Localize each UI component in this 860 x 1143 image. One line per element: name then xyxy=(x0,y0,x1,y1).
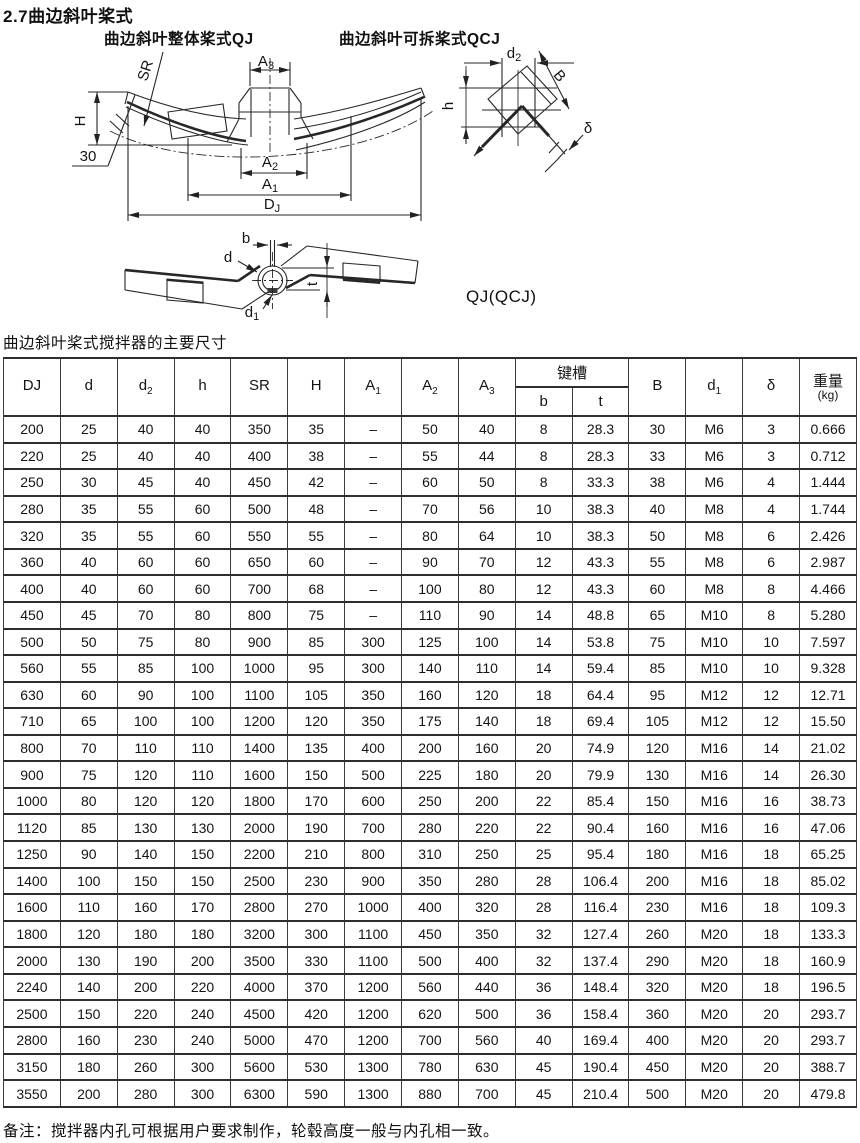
table-cell: 110 xyxy=(174,735,231,762)
table-cell: M8 xyxy=(686,496,743,523)
dim-B: B xyxy=(550,67,569,86)
col-header-dj: DJ xyxy=(4,358,61,416)
table-cell: 12.71 xyxy=(800,682,857,709)
table-cell: 18 xyxy=(743,974,800,1001)
table-cell: 60 xyxy=(174,522,231,549)
col-header-d: d xyxy=(60,358,117,416)
table-cell: 470 xyxy=(288,1027,345,1054)
table-cell: 12 xyxy=(743,708,800,735)
table-cell: 21.02 xyxy=(800,735,857,762)
table-cell: 32 xyxy=(515,921,572,948)
table-cell: 150 xyxy=(174,841,231,868)
table-cell: 150 xyxy=(288,761,345,788)
table-cell: 270 xyxy=(288,894,345,921)
table-cell: 190.4 xyxy=(572,1054,629,1081)
table-cell: 5.280 xyxy=(800,602,857,629)
table-cell: 14 xyxy=(515,602,572,629)
table-cell: 20 xyxy=(743,1000,800,1027)
table-cell: 620 xyxy=(402,1000,459,1027)
table-cell: 250 xyxy=(4,469,61,496)
table-cell: 15.50 xyxy=(800,708,857,735)
table-cell: 65 xyxy=(629,602,686,629)
table-cell: 900 xyxy=(4,761,61,788)
table-cell: 700 xyxy=(458,1080,515,1107)
table-row: 18001201801803200300110045035032127.4260… xyxy=(4,921,857,948)
table-cell: 105 xyxy=(629,708,686,735)
table-cell: 210.4 xyxy=(572,1080,629,1107)
table-cell: 320 xyxy=(458,894,515,921)
table-cell: 180 xyxy=(458,761,515,788)
table-cell: 38 xyxy=(629,469,686,496)
table-cell: 160 xyxy=(117,894,174,921)
col-header-h: h xyxy=(174,358,231,416)
dim-H: H xyxy=(72,116,89,127)
table-cell: 36 xyxy=(515,974,572,1001)
table-caption: 曲边斜叶桨式搅拌器的主要尺寸 xyxy=(3,331,227,353)
table-cell: 45 xyxy=(60,602,117,629)
table-cell: M16 xyxy=(686,761,743,788)
table-cell: 22 xyxy=(515,814,572,841)
table-cell: 9.328 xyxy=(800,655,857,682)
table-cell: 20 xyxy=(515,761,572,788)
table-cell: 90 xyxy=(458,602,515,629)
col-header-keyway-t: t xyxy=(572,387,629,416)
table-cell: 55 xyxy=(288,522,345,549)
dimension-table: DJ d d2 h SR H A1 A2 A3 键槽 B d1 δ 重量(kg)… xyxy=(3,357,857,1108)
table-cell: 360 xyxy=(4,549,61,576)
table-cell: 240 xyxy=(174,1000,231,1027)
table-cell: 260 xyxy=(117,1054,174,1081)
table-cell: 80 xyxy=(174,629,231,656)
table-cell: M6 xyxy=(686,469,743,496)
table-cell: 45 xyxy=(515,1054,572,1081)
table-cell: 120 xyxy=(60,921,117,948)
table-cell: 3500 xyxy=(231,947,288,974)
table-cell: 30 xyxy=(629,416,686,443)
col-header-weight: 重量(kg) xyxy=(800,358,857,416)
table-cell: 560 xyxy=(402,974,459,1001)
table-row: 8007011011014001354002001602074.9120M161… xyxy=(4,735,857,762)
table-cell: 18 xyxy=(743,841,800,868)
table-cell: 800 xyxy=(345,841,402,868)
table-cell: 370 xyxy=(288,974,345,1001)
dim-d1: d1 xyxy=(245,304,259,323)
table-cell: 8 xyxy=(743,602,800,629)
table-cell: 700 xyxy=(402,1027,459,1054)
table-cell: 79.9 xyxy=(572,761,629,788)
table-cell: 38.3 xyxy=(572,496,629,523)
table-cell: 3550 xyxy=(4,1080,61,1107)
table-cell: 75 xyxy=(60,761,117,788)
table-cell: 3 xyxy=(743,443,800,470)
table-cell: 200 xyxy=(402,735,459,762)
table-cell: 10 xyxy=(743,655,800,682)
table-cell: 70 xyxy=(402,496,459,523)
table-cell: 200 xyxy=(60,1080,117,1107)
table-cell: M16 xyxy=(686,841,743,868)
table-cell: 630 xyxy=(458,1054,515,1081)
table-cell: 60 xyxy=(288,549,345,576)
table-cell: M16 xyxy=(686,868,743,895)
table-cell: 33.3 xyxy=(572,469,629,496)
table-cell: 68 xyxy=(288,575,345,602)
table-cell: 43.3 xyxy=(572,575,629,602)
table-cell: 45 xyxy=(515,1080,572,1107)
table-cell: 69.4 xyxy=(572,708,629,735)
table-cell: M12 xyxy=(686,682,743,709)
table-cell: 700 xyxy=(345,814,402,841)
table-cell: 14 xyxy=(515,629,572,656)
table-cell: 18 xyxy=(515,682,572,709)
dim-delta: δ xyxy=(584,120,592,137)
table-cell: 400 xyxy=(402,894,459,921)
table-cell: 130 xyxy=(174,814,231,841)
table-cell: 1100 xyxy=(231,682,288,709)
table-cell: 90 xyxy=(60,841,117,868)
col-header-a1: A1 xyxy=(345,358,402,416)
table-cell: 220 xyxy=(117,1000,174,1027)
table-cell: M20 xyxy=(686,974,743,1001)
table-cell: 85 xyxy=(629,655,686,682)
table-cell: 1400 xyxy=(4,868,61,895)
table-cell: 85 xyxy=(288,629,345,656)
table-cell: 100 xyxy=(174,708,231,735)
table-cell: 6300 xyxy=(231,1080,288,1107)
table-cell: 56 xyxy=(458,496,515,523)
table-cell: 300 xyxy=(174,1054,231,1081)
table-cell: 150 xyxy=(629,788,686,815)
table-cell: 420 xyxy=(288,1000,345,1027)
table-cell: 500 xyxy=(629,1080,686,1107)
table-cell: 80 xyxy=(174,602,231,629)
table-cell: 200 xyxy=(629,868,686,895)
technical-drawing: H SR 30 A3 A2 A1 DJ xyxy=(0,0,860,348)
table-cell: 440 xyxy=(458,974,515,1001)
table-cell: 42 xyxy=(288,469,345,496)
table-row: 16001101601702800270100040032028116.4230… xyxy=(4,894,857,921)
col-header-B: B xyxy=(629,358,686,416)
side-view-drawing xyxy=(72,52,433,221)
table-cell: 110 xyxy=(402,602,459,629)
table-cell: M20 xyxy=(686,1000,743,1027)
table-cell: 530 xyxy=(288,1054,345,1081)
table-cell: 190 xyxy=(117,947,174,974)
table-cell: 196.5 xyxy=(800,974,857,1001)
table-cell: 4500 xyxy=(231,1000,288,1027)
table-cell: 330 xyxy=(288,947,345,974)
table-cell: 360 xyxy=(629,1000,686,1027)
table-cell: 55 xyxy=(402,443,459,470)
table-cell: 4 xyxy=(743,496,800,523)
table-cell: 2.987 xyxy=(800,549,857,576)
table-cell: M20 xyxy=(686,1080,743,1107)
table-cell: 800 xyxy=(231,602,288,629)
table-cell: 590 xyxy=(288,1080,345,1107)
table-cell: 85 xyxy=(117,655,174,682)
table-cell: 60 xyxy=(174,549,231,576)
table-cell: 180 xyxy=(629,841,686,868)
table-cell: 300 xyxy=(288,921,345,948)
table-cell: 60 xyxy=(402,469,459,496)
table-cell: 1400 xyxy=(231,735,288,762)
table-cell: 450 xyxy=(231,469,288,496)
table-row: 45045708080075–110901448.865M1085.280 xyxy=(4,602,857,629)
table-cell: 210 xyxy=(288,841,345,868)
table-row: 12509014015022002108003102502595.4180M16… xyxy=(4,841,857,868)
table-cell: 1.444 xyxy=(800,469,857,496)
table-cell: – xyxy=(345,549,402,576)
table-cell: 4000 xyxy=(231,974,288,1001)
table-cell: 12 xyxy=(515,575,572,602)
table-row: 20001301902003500330110050040032137.4290… xyxy=(4,947,857,974)
table-cell: 175 xyxy=(402,708,459,735)
table-cell: 12 xyxy=(515,549,572,576)
table-cell: 95 xyxy=(288,655,345,682)
table-cell: 100 xyxy=(458,629,515,656)
table-cell: 125 xyxy=(402,629,459,656)
table-cell: 1200 xyxy=(345,974,402,1001)
table-cell: 2500 xyxy=(231,868,288,895)
table-cell: 4.466 xyxy=(800,575,857,602)
table-cell: 5000 xyxy=(231,1027,288,1054)
col-header-H: H xyxy=(288,358,345,416)
table-cell: 500 xyxy=(458,1000,515,1027)
table-row: 31501802603005600530130078063045190.4450… xyxy=(4,1054,857,1081)
table-cell: 2.426 xyxy=(800,522,857,549)
col-header-delta: δ xyxy=(743,358,800,416)
table-cell: 293.7 xyxy=(800,1027,857,1054)
table-cell: 180 xyxy=(60,1054,117,1081)
table-cell: 18 xyxy=(743,868,800,895)
table-cell: 60 xyxy=(117,549,174,576)
table-cell: 45 xyxy=(117,469,174,496)
table-row: 35502002803006300590130088070045210.4500… xyxy=(4,1080,857,1107)
table-cell: 300 xyxy=(345,629,402,656)
table-cell: 300 xyxy=(174,1080,231,1107)
table-cell: M16 xyxy=(686,735,743,762)
col-header-keyway-b: b xyxy=(515,387,572,416)
table-cell: 148.4 xyxy=(572,974,629,1001)
table-cell: 280 xyxy=(458,868,515,895)
table-cell: 350 xyxy=(402,868,459,895)
table-cell: 55 xyxy=(60,655,117,682)
table-cell: 300 xyxy=(345,655,402,682)
table-body: 20025404035035–5040828.330M630.666220254… xyxy=(4,416,857,1107)
table-cell: 220 xyxy=(4,443,61,470)
table-cell: 2000 xyxy=(231,814,288,841)
table-cell: 260 xyxy=(629,921,686,948)
table-cell: 100 xyxy=(402,575,459,602)
table-cell: 14 xyxy=(515,655,572,682)
dim-A1: A1 xyxy=(262,176,278,195)
table-cell: 85 xyxy=(60,814,117,841)
table-cell: 350 xyxy=(345,682,402,709)
table-cell: – xyxy=(345,575,402,602)
table-cell: 90 xyxy=(402,549,459,576)
table-cell: 70 xyxy=(117,602,174,629)
table-cell: 160 xyxy=(458,735,515,762)
table-cell: 130 xyxy=(117,814,174,841)
table-cell: 310 xyxy=(402,841,459,868)
table-row: 32035556055055–80641038.350M862.426 xyxy=(4,522,857,549)
table-cell: 16 xyxy=(743,814,800,841)
table-cell: 8 xyxy=(515,469,572,496)
table-cell: 200 xyxy=(174,947,231,974)
table-cell: M16 xyxy=(686,894,743,921)
table-cell: 2800 xyxy=(231,894,288,921)
table-cell: 18 xyxy=(743,947,800,974)
col-header-a2: A2 xyxy=(402,358,459,416)
table-cell: 710 xyxy=(4,708,61,735)
table-cell: 320 xyxy=(4,522,61,549)
table-cell: 4 xyxy=(743,469,800,496)
table-cell: 350 xyxy=(458,921,515,948)
table-cell: 1200 xyxy=(345,1027,402,1054)
table-cell: 75 xyxy=(117,629,174,656)
table-cell: 160 xyxy=(60,1027,117,1054)
table-cell: 48 xyxy=(288,496,345,523)
table-cell: M16 xyxy=(686,814,743,841)
table-cell: 800 xyxy=(4,735,61,762)
table-cell: 38 xyxy=(288,443,345,470)
table-cell: 700 xyxy=(231,575,288,602)
table-cell: 28 xyxy=(515,894,572,921)
dim-h: h xyxy=(440,102,457,110)
table-cell: 230 xyxy=(629,894,686,921)
table-cell: 50 xyxy=(402,416,459,443)
table-cell: 100 xyxy=(117,708,174,735)
table-cell: M10 xyxy=(686,629,743,656)
dim-30: 30 xyxy=(80,148,97,165)
table-cell: 650 xyxy=(231,549,288,576)
table-cell: 127.4 xyxy=(572,921,629,948)
table-cell: 44 xyxy=(458,443,515,470)
table-cell: 140 xyxy=(60,974,117,1001)
table-cell: 140 xyxy=(458,708,515,735)
table-cell: 22 xyxy=(515,788,572,815)
table-row: 36040606065060–90701243.355M862.987 xyxy=(4,549,857,576)
col-header-sr: SR xyxy=(231,358,288,416)
table-cell: 200 xyxy=(4,416,61,443)
table-cell: 110 xyxy=(117,735,174,762)
table-cell: 70 xyxy=(458,549,515,576)
table-cell: 40 xyxy=(629,496,686,523)
table-cell: 137.4 xyxy=(572,947,629,974)
table-cell: 60 xyxy=(174,496,231,523)
table-cell: 55 xyxy=(117,522,174,549)
table-cell: 320 xyxy=(629,974,686,1001)
table-cell: 230 xyxy=(288,868,345,895)
table-cell: 135 xyxy=(288,735,345,762)
table-cell: 10 xyxy=(743,629,800,656)
col-header-a3: A3 xyxy=(458,358,515,416)
table-cell: 60 xyxy=(174,575,231,602)
table-cell: 110 xyxy=(60,894,117,921)
table-cell: 560 xyxy=(4,655,61,682)
table-cell: 180 xyxy=(174,921,231,948)
table-cell: 120 xyxy=(174,788,231,815)
table-cell: 116.4 xyxy=(572,894,629,921)
model-designation: QJ(QCJ) xyxy=(466,287,537,307)
table-cell: 560 xyxy=(458,1027,515,1054)
table-cell: 90 xyxy=(117,682,174,709)
dim-d2: d2 xyxy=(507,45,521,64)
table-cell: 1600 xyxy=(231,761,288,788)
table-cell: 65 xyxy=(60,708,117,735)
table-cell: 180 xyxy=(117,921,174,948)
dim-A3: A3 xyxy=(258,53,274,72)
table-cell: 1000 xyxy=(4,788,61,815)
table-cell: 80 xyxy=(402,522,459,549)
table-row: 40040606070068–100801243.360M884.466 xyxy=(4,575,857,602)
table-cell: 10 xyxy=(515,496,572,523)
col-header-d1: d1 xyxy=(686,358,743,416)
table-cell: 150 xyxy=(174,868,231,895)
table-cell: 900 xyxy=(345,868,402,895)
table-cell: 7.597 xyxy=(800,629,857,656)
table-cell: 64 xyxy=(458,522,515,549)
table-cell: 40 xyxy=(174,416,231,443)
table-cell: 100 xyxy=(174,682,231,709)
table-cell: 8 xyxy=(515,416,572,443)
table-cell: 1300 xyxy=(345,1054,402,1081)
table-row: 11208513013020001907002802202290.4160M16… xyxy=(4,814,857,841)
table-cell: 6 xyxy=(743,522,800,549)
table-cell: 169.4 xyxy=(572,1027,629,1054)
table-cell: 2240 xyxy=(4,974,61,1001)
table-cell: 200 xyxy=(117,974,174,1001)
catalog-page: 2.7曲边斜叶桨式 曲边斜叶整体桨式QJ 曲边斜叶可拆桨式QCJ xyxy=(0,0,860,1143)
table-cell: 110 xyxy=(174,761,231,788)
table-cell: 50 xyxy=(458,469,515,496)
table-row: 28001602302405000470120070056040169.4400… xyxy=(4,1027,857,1054)
table-cell: 20 xyxy=(743,1054,800,1081)
table-cell: 59.4 xyxy=(572,655,629,682)
table-cell: M20 xyxy=(686,1027,743,1054)
table-row: 10008012012018001706002502002285.4150M16… xyxy=(4,788,857,815)
table-cell: 90.4 xyxy=(572,814,629,841)
table-cell: 60 xyxy=(117,575,174,602)
table-cell: 18 xyxy=(743,894,800,921)
table-cell: 75 xyxy=(629,629,686,656)
table-cell: 130 xyxy=(60,947,117,974)
table-cell: M8 xyxy=(686,575,743,602)
table-cell: 110 xyxy=(458,655,515,682)
table-row: 28035556050048–70561038.340M841.744 xyxy=(4,496,857,523)
table-cell: 33 xyxy=(629,443,686,470)
table-cell: 40 xyxy=(515,1027,572,1054)
col-header-keyway: 键槽 xyxy=(515,358,629,387)
table-cell: 400 xyxy=(345,735,402,762)
table-cell: 28 xyxy=(515,868,572,895)
table-cell: 400 xyxy=(458,947,515,974)
table-cell: 280 xyxy=(117,1080,174,1107)
table-cell: 48.8 xyxy=(572,602,629,629)
table-cell: 20 xyxy=(515,735,572,762)
table-cell: 40 xyxy=(174,469,231,496)
table-cell: 450 xyxy=(402,921,459,948)
table-cell: 130 xyxy=(629,761,686,788)
table-cell: 60 xyxy=(60,682,117,709)
table-cell: 40 xyxy=(60,549,117,576)
table-cell: 55 xyxy=(629,549,686,576)
table-cell: 120 xyxy=(288,708,345,735)
table-cell: M6 xyxy=(686,416,743,443)
table-cell: 500 xyxy=(231,496,288,523)
table-cell: 74.9 xyxy=(572,735,629,762)
table-cell: 150 xyxy=(117,868,174,895)
table-row: 630609010011001053501601201864.495M12121… xyxy=(4,682,857,709)
